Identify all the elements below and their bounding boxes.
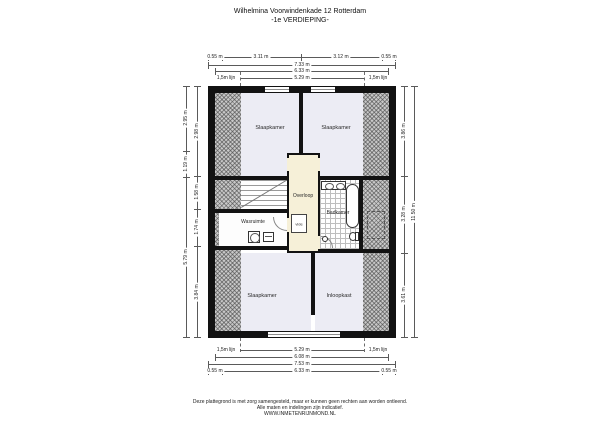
dim-label: 3.28 m [401, 204, 407, 223]
room-landing [287, 153, 320, 253]
dim-label: 11.50 m [411, 201, 417, 223]
dim-label: 3.11 m [252, 54, 271, 60]
dim-label-15m-line: 1,5m lijn [367, 347, 390, 353]
door-opening [318, 158, 320, 171]
wall-exterior-top [208, 86, 396, 93]
dim-label: 5.29 m [292, 347, 311, 353]
wall-bedroom-right-bottom [320, 176, 389, 180]
floorplan-drawing: vide [208, 86, 396, 338]
wall-closet-divider [311, 253, 315, 315]
dim-label: 1.58 m [194, 182, 200, 201]
dim-label: 2.98 m [194, 121, 200, 140]
15m-line-dashed [364, 338, 365, 352]
dim-line-top-segments [208, 57, 396, 58]
dim-label: 6.33 m [292, 368, 311, 374]
label-landing: Overloop [293, 193, 313, 199]
floorplan-page: Wilhelmina Voorwindenkade 12 Rotterdam -… [0, 0, 600, 424]
dim-label: 0.55 m [379, 54, 398, 60]
wall-exterior-left [208, 86, 215, 338]
double-sink-icon [321, 181, 346, 190]
laundry-basket-icon [263, 232, 274, 242]
window-top-left [265, 87, 289, 92]
toilet-tank-icon [355, 232, 359, 241]
dim-label: 1.74 m [194, 217, 200, 236]
15m-line-dashed [240, 72, 241, 86]
disclaimer-block: Deze plattegrond is met zorg samengestel… [0, 399, 600, 417]
window-bottom [268, 332, 340, 337]
dim-label-15m-line: 1,5m lijn [215, 75, 238, 81]
wall-bedroom-left-bottom [215, 176, 287, 180]
dim-label: 0.55 m [379, 368, 398, 374]
door-opening [318, 236, 320, 249]
room-closet [315, 253, 363, 331]
staircase [241, 180, 287, 209]
dim-label: 1.19 m [183, 154, 189, 173]
label-bathroom: Badkamer [327, 210, 350, 216]
label-bedroom-bottom: Slaapkamer [247, 293, 276, 299]
15m-line-dashed [364, 72, 365, 86]
door-opening [287, 158, 289, 171]
page-subtitle: -1e VERDIEPING- [0, 16, 600, 25]
label-bedroom-top-left: Slaapkamer [255, 125, 284, 131]
dim-label: 3.84 m [194, 282, 200, 301]
shower-drain-icon [322, 236, 328, 242]
dim-label: 2.95 m [183, 108, 189, 127]
dim-label: 5.79 m [183, 247, 189, 266]
dim-label: 3.61 m [401, 285, 407, 304]
label-laundry: Wasruimte [241, 219, 265, 225]
wall-laundry-bottom [215, 246, 287, 250]
stair-diagonal-line [241, 179, 288, 208]
wall-laundry-top [215, 209, 287, 213]
label-bedroom-top-right: Slaapkamer [321, 125, 350, 131]
website-url: WWW.INMETENRIJNMOND.NL [0, 411, 600, 417]
dim-label-15m-line: 1,5m lijn [215, 347, 238, 353]
dim-label-15m-line: 1,5m lijn [367, 75, 390, 81]
page-title: Wilhelmina Voorwindenkade 12 Rotterdam [0, 7, 600, 16]
window-top-right [311, 87, 335, 92]
dim-label: 0.55 m [205, 368, 224, 374]
washing-machine-icon [248, 231, 260, 243]
void-opening: vide [291, 214, 307, 233]
room-bedroom-bottom [241, 253, 311, 331]
dim-label: 3.12 m [331, 54, 350, 60]
wall-bathroom-right [359, 180, 363, 249]
wall-bathroom-bottom [320, 249, 389, 253]
wall-exterior-right [389, 86, 396, 338]
dim-label: 6.33 m [292, 68, 311, 74]
void-label: vide [295, 221, 302, 226]
bathtub-icon [346, 184, 359, 228]
door-opening [287, 218, 289, 232]
wall-bedroom-divider [299, 93, 303, 153]
page-title-block: Wilhelmina Voorwindenkade 12 Rotterdam -… [0, 7, 600, 25]
dim-label: 7.53 m [292, 361, 311, 367]
dim-label: 5.29 m [292, 75, 311, 81]
dim-label: 6.08 m [292, 354, 311, 360]
dormer-outline [367, 211, 385, 239]
label-closet: Inloopkast [326, 293, 351, 299]
dim-label: 3.86 m [401, 121, 407, 140]
dim-label: 0.55 m [205, 54, 224, 60]
